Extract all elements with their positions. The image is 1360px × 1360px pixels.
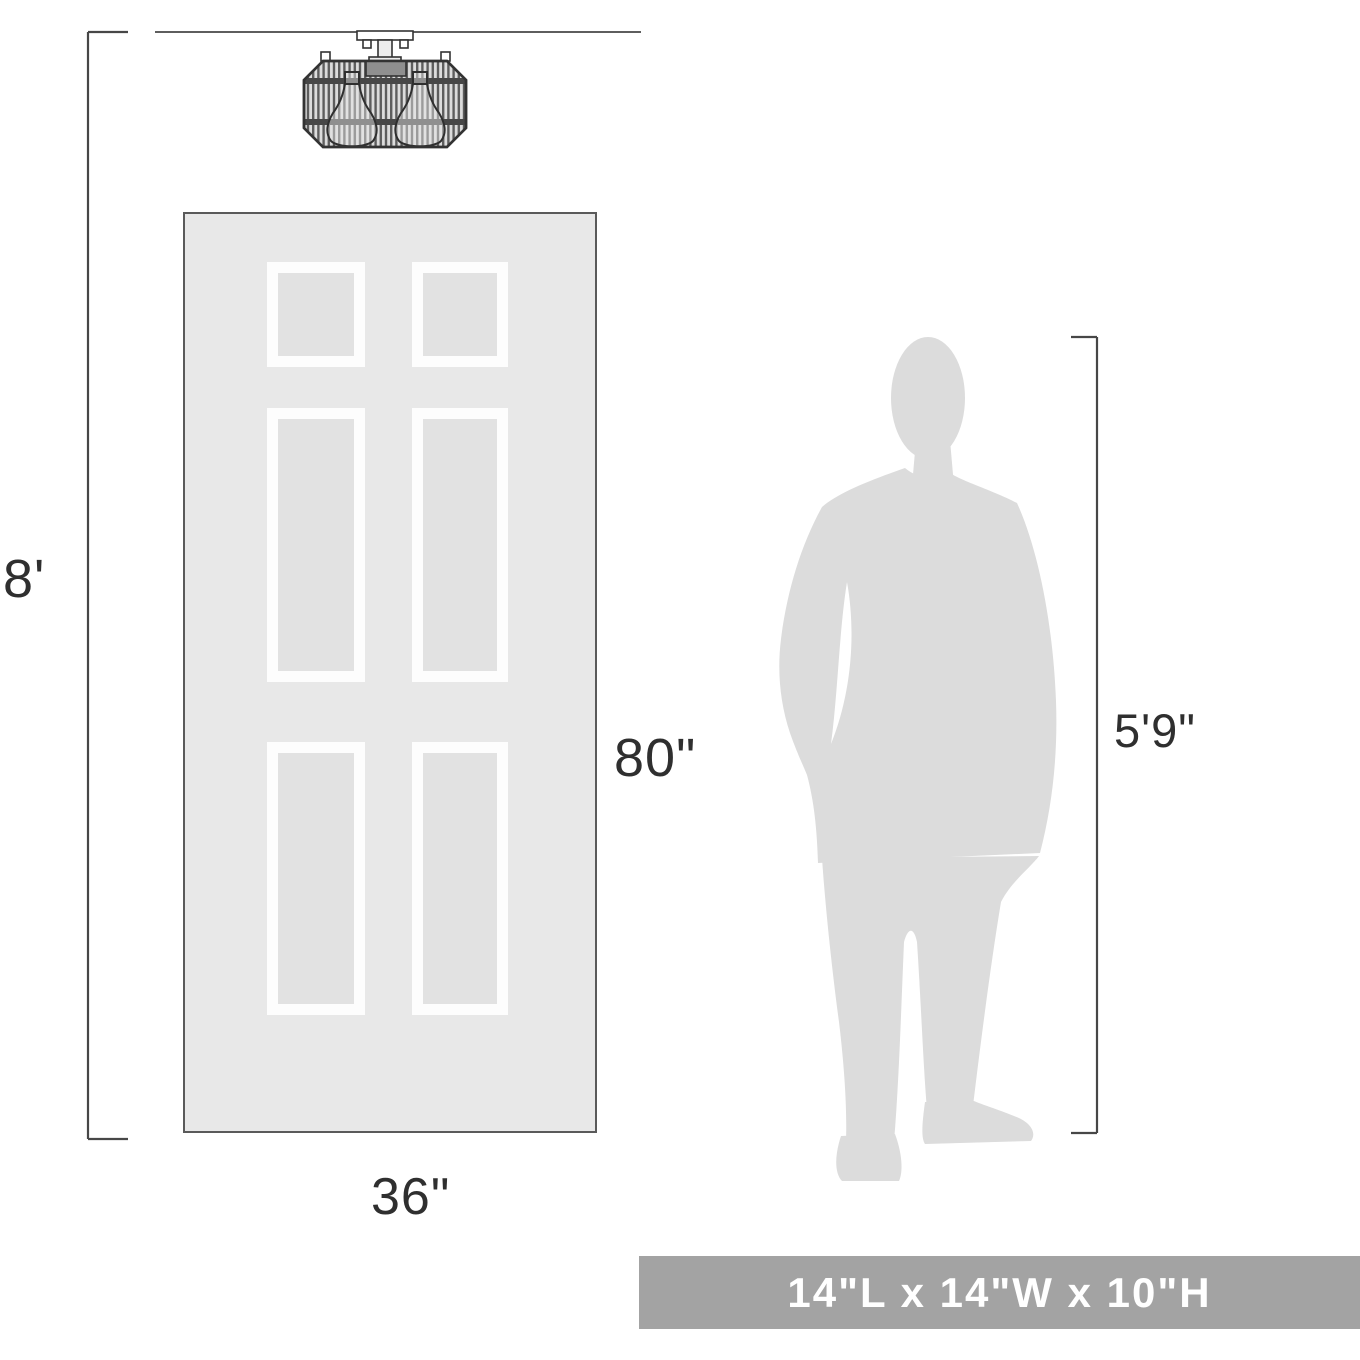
fixture-stem xyxy=(378,40,392,59)
silhouette-right-shoe xyxy=(922,1101,1033,1144)
fixture-fitter xyxy=(366,61,406,76)
door-width-label: 36" xyxy=(371,1171,450,1223)
person-height-dimension-line xyxy=(1071,337,1097,1133)
ceiling-light-fixture-icon xyxy=(304,31,466,147)
standing-man-silhouette-icon xyxy=(779,337,1056,1181)
door-height-label: 80" xyxy=(614,731,696,785)
fixture-canopy-nub xyxy=(363,40,371,48)
fixture-band xyxy=(304,78,466,84)
ceiling-height-label: 8' xyxy=(3,552,45,606)
fixture-shade-nub xyxy=(441,52,450,61)
fixture-canopy xyxy=(357,31,413,40)
person-height-label: 5'9" xyxy=(1114,707,1196,754)
product-dimensions-banner: 14"L x 14"W x 10"H xyxy=(639,1256,1360,1329)
silhouette-legs xyxy=(822,856,1039,1142)
product-dimensions-text: 14"L x 14"W x 10"H xyxy=(787,1269,1211,1317)
diagram-graphics xyxy=(0,0,1360,1360)
product-scale-diagram: 8' 80" 36" 5'9" 14"L x 14"W x 10"H xyxy=(0,0,1360,1360)
fixture-shade-nub xyxy=(321,52,330,61)
silhouette-left-shoe xyxy=(836,1134,901,1181)
silhouette-torso xyxy=(779,468,1056,863)
fixture-canopy-nub xyxy=(400,40,408,48)
ceiling-height-dimension-line xyxy=(88,32,128,1139)
